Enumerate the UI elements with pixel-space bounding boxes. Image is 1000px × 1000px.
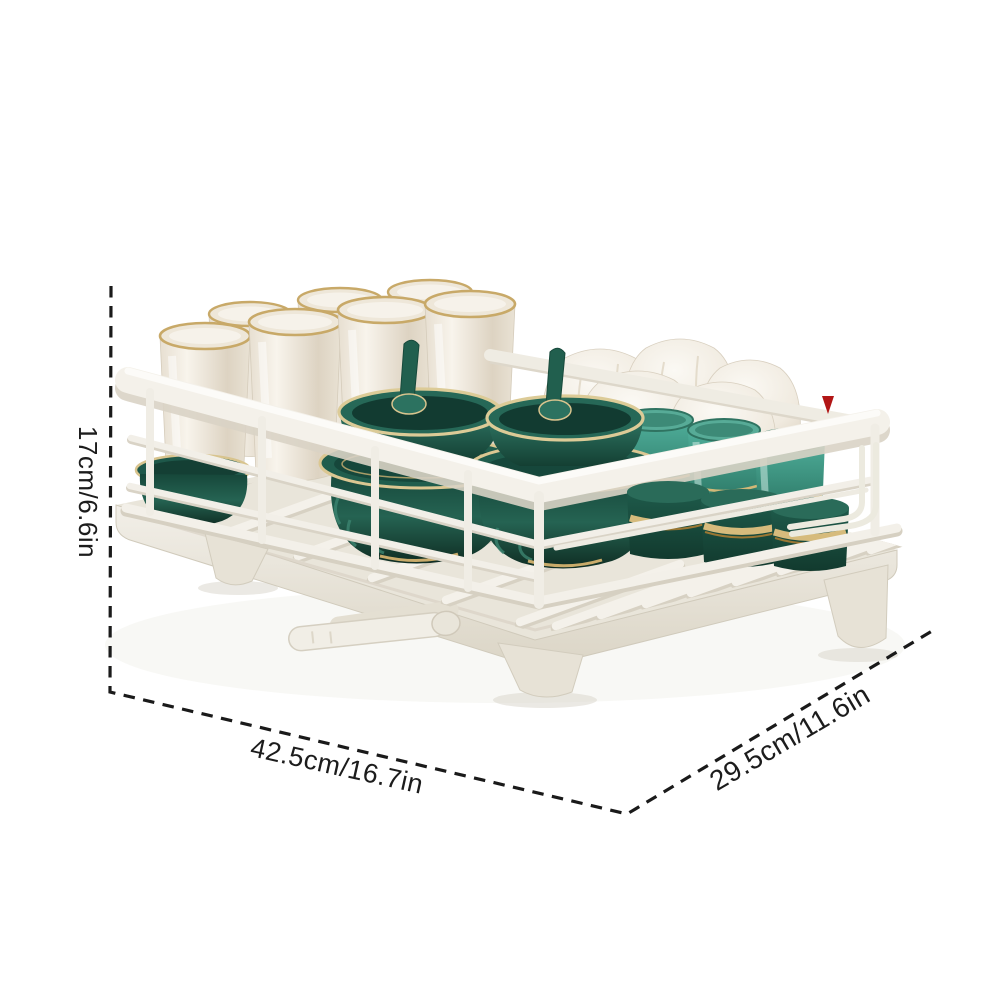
product-dimension-figure: 17cm/6.6in 42.5cm/16.7in 29.5cm/11.6in: [0, 0, 1000, 1000]
dish-rack-illustration: [0, 0, 1000, 1000]
height-dimension-label: 17cm/6.6in: [66, 410, 110, 574]
